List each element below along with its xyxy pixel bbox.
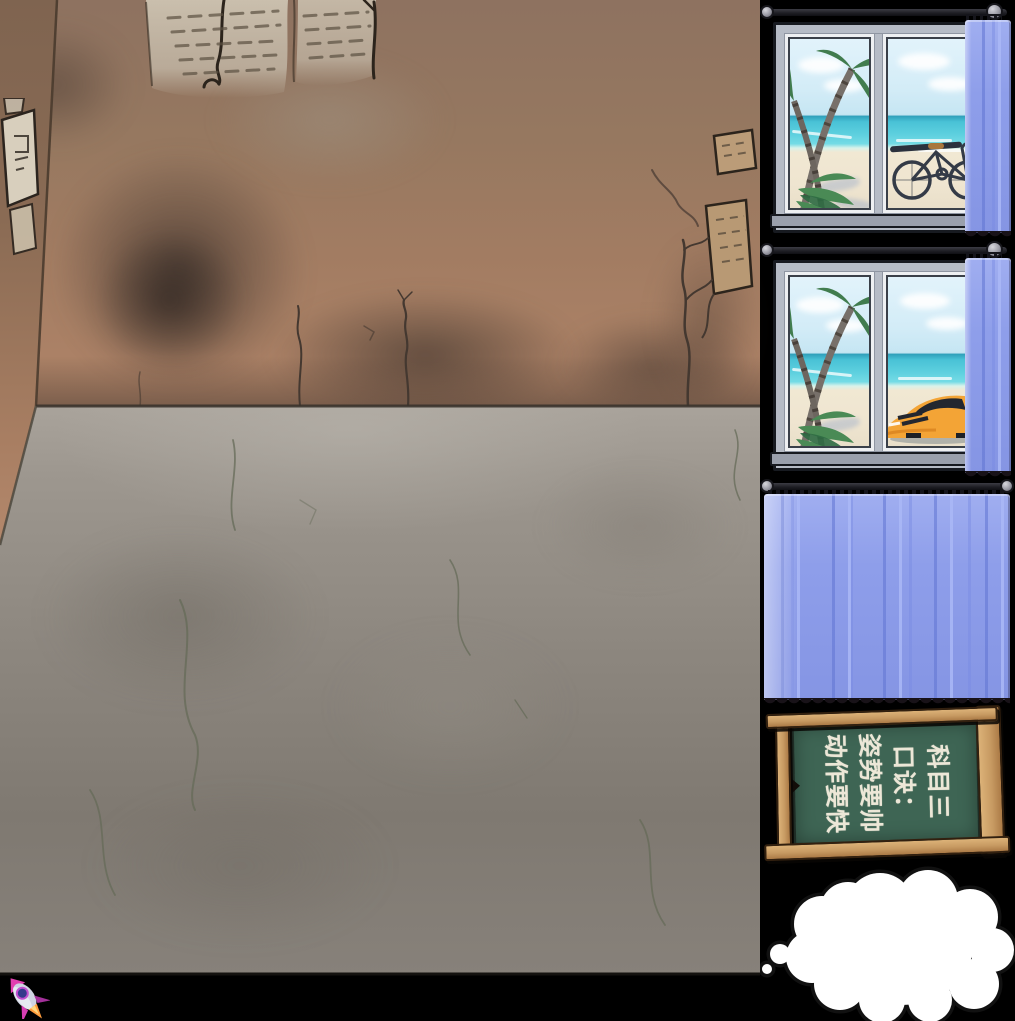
bicycle bbox=[886, 126, 969, 204]
beach-scene bbox=[790, 277, 869, 446]
board-notch bbox=[792, 779, 800, 793]
curtain-full bbox=[764, 494, 1010, 700]
chalkboard-frame: 科目三 口诀： 姿势要帅 动作要快 bbox=[759, 705, 1012, 864]
beach-scene bbox=[888, 277, 967, 446]
floor bbox=[0, 406, 760, 975]
sports-car bbox=[886, 382, 969, 444]
beach-scene bbox=[888, 39, 967, 208]
chalk-line: 动作要快 bbox=[817, 725, 853, 844]
item-panel: 科目三 口诀： 姿势要帅 动作要快 bbox=[760, 0, 1015, 1021]
window-pane-left bbox=[788, 37, 871, 210]
main-wall bbox=[0, 0, 760, 408]
curtain-panel bbox=[965, 258, 1011, 473]
window-sill bbox=[770, 452, 986, 466]
chalkboard-surface: 科目三 口诀： 姿势要帅 动作要快 bbox=[791, 720, 982, 846]
frame-bar bbox=[975, 705, 1005, 856]
game-asset-screen: 科目三 口诀： 姿势要帅 动作要快 bbox=[0, 0, 1015, 1021]
window-mullion bbox=[874, 34, 883, 213]
item-curtain-closed[interactable] bbox=[760, 478, 1015, 712]
curtain-rod bbox=[762, 483, 1012, 490]
chalk-line: 口诀： bbox=[885, 723, 921, 842]
rod-finial bbox=[760, 5, 774, 19]
chalk-line: 科目三 bbox=[919, 723, 955, 842]
frame-bar bbox=[775, 718, 792, 856]
window bbox=[773, 260, 983, 471]
item-chalkboard[interactable]: 科目三 口诀： 姿势要帅 动作要快 bbox=[760, 705, 1015, 862]
curtain-panel bbox=[965, 20, 1011, 233]
window-mullion bbox=[874, 272, 883, 451]
rod-finial bbox=[760, 243, 774, 257]
chalk-line: 姿势要帅 bbox=[851, 724, 887, 843]
window-pane-right bbox=[886, 275, 969, 448]
window-sill bbox=[770, 214, 986, 228]
window-pane-right bbox=[886, 37, 969, 210]
room-background bbox=[0, 0, 760, 1021]
thought-bubble-icon[interactable] bbox=[760, 862, 1015, 1021]
beach-scene bbox=[790, 39, 869, 208]
item-window-beach-bicycle[interactable] bbox=[760, 0, 1015, 240]
item-window-beach-car[interactable] bbox=[760, 240, 1015, 478]
rocket-icon[interactable] bbox=[2, 977, 50, 1019]
window bbox=[773, 22, 983, 233]
chalk-text: 科目三 口诀： 姿势要帅 动作要快 bbox=[817, 723, 955, 844]
window-pane-left bbox=[788, 275, 871, 448]
